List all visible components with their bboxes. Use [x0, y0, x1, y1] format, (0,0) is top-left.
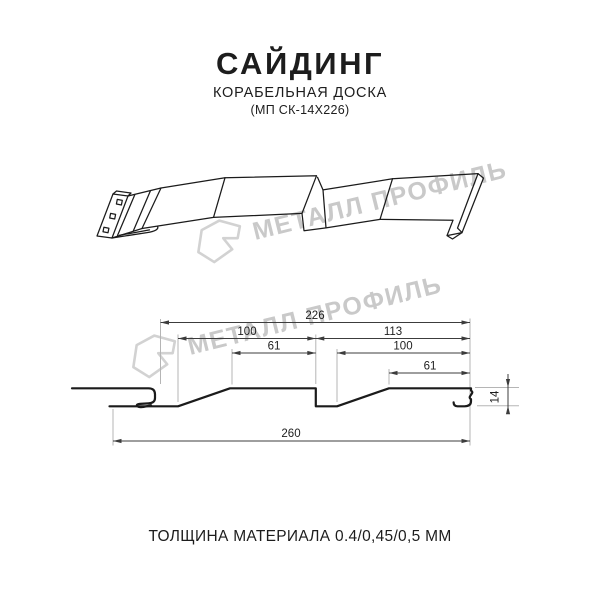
- dim-left-flat-label: 61: [268, 341, 281, 353]
- slope-face-2: [323, 179, 393, 228]
- dim-right-flat-label: 61: [424, 361, 437, 373]
- dim-right-board-label: 113: [384, 326, 402, 338]
- dim-right-inner-label: 100: [393, 341, 412, 353]
- profile-3d-drawing: [97, 174, 484, 239]
- nail-strip-hole: [116, 199, 122, 205]
- material-thickness-note: ТОЛЩИНА МАТЕРИАЛА 0.4/0,45/0,5 ММ: [0, 528, 600, 546]
- dim-left-board-label: 100: [237, 326, 256, 338]
- right-end-cap: [458, 174, 484, 233]
- dim-overall-width-label: 226: [305, 310, 324, 322]
- section-extension-lines: [113, 319, 519, 446]
- model-code: (МП СК-14Х226): [0, 103, 600, 117]
- page-title: САЙДИНГ: [0, 46, 600, 82]
- nail-strip-hole: [110, 213, 116, 219]
- dim-profile-height-label: 14: [490, 390, 502, 403]
- section-dimension-lines: [113, 323, 508, 442]
- page-subtitle: КОРАБЕЛЬНАЯ ДОСКА: [0, 85, 600, 101]
- nail-strip-face: [97, 194, 128, 238]
- product-drawing-canvas: МЕТАЛЛ ПРОФИЛЬ МЕТАЛЛ ПРОФИЛЬ: [0, 0, 600, 600]
- dim-total-width-label: 260: [281, 428, 300, 440]
- section-left-lock: [72, 388, 155, 407]
- section-main-profile: [110, 388, 473, 406]
- section-profile-outline: [72, 388, 472, 407]
- nail-strip-hole: [103, 227, 109, 233]
- board-1-top-face: [214, 176, 317, 218]
